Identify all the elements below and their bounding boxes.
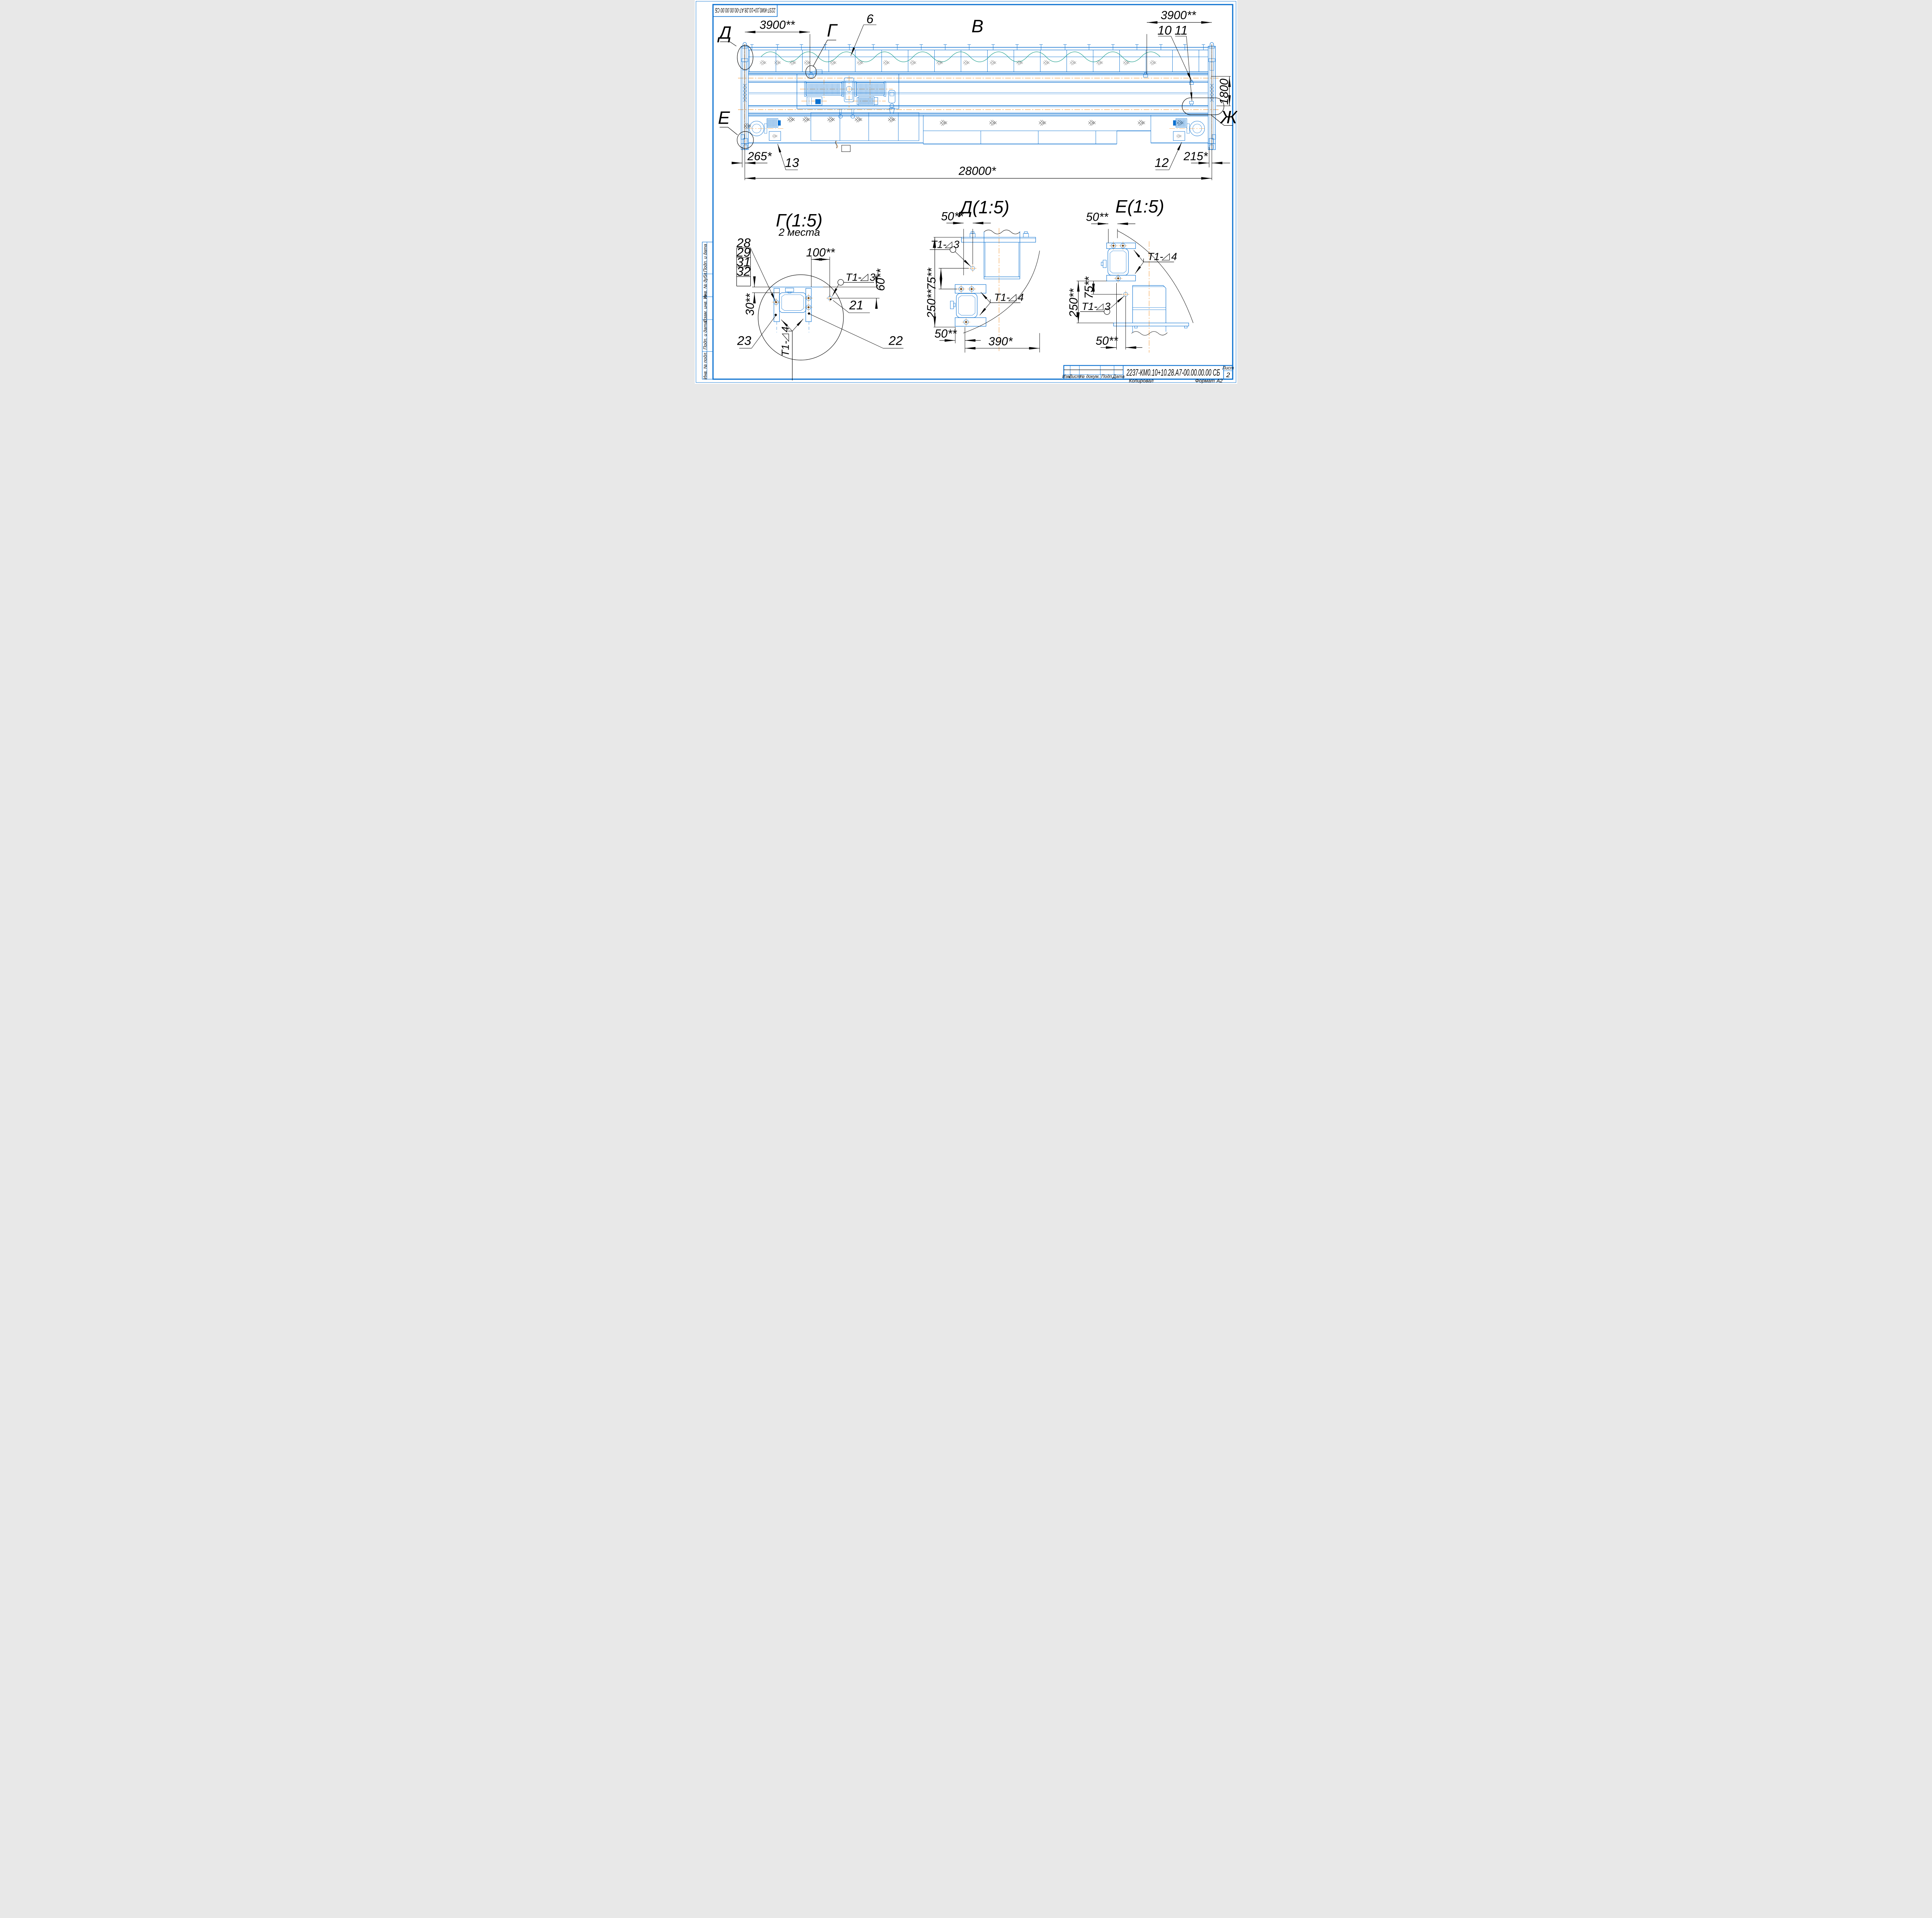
kopiroval-label: Копировал [1129,378,1154,384]
weld-grade: 3 [954,238,959,250]
pos-13: 13 [785,155,799,170]
weld-prefix: Т1- [931,238,947,250]
side-strip-label: Взам. инв. № [703,294,708,322]
dim-d-50-top: 50** [941,210,964,223]
side-strip-label: Подп. и дата [703,321,708,349]
dim-d-75: 75** [925,267,938,290]
dim-left-offset: 265* [747,150,772,163]
detail-g-note: 2 места [778,226,820,238]
dim-g-100: 100** [806,246,835,259]
side-strip-label: Инв. № подл. [703,352,708,380]
weld-prefix: Т1- [846,271,862,283]
detail-e-title: Е(1:5) [1116,196,1164,216]
dim-right-offset: 215* [1183,150,1208,163]
dim-d-250: 250** [925,289,938,319]
marker-e-label: Е [718,108,730,128]
pos-21: 21 [849,298,863,312]
format-label: Формат [1195,378,1215,384]
weld-grade: 3 [870,271,876,283]
dim-d-390: 390* [988,335,1013,348]
col-list: Лист [1069,374,1081,379]
dim-g-60: 60** [874,268,887,291]
pos-10: 10 [1158,23,1172,37]
pos-22: 22 [888,333,903,347]
col-podp: Подп. [1101,374,1113,379]
document-designation: 2237-КМ0.10+10.28.А7-00.00.00.00 СБ [1126,368,1220,378]
pos-23: 23 [737,333,751,347]
weld-grade: 3 [1105,300,1111,312]
side-strip-label: Подп. и дата [703,244,708,272]
stack-32: 32 [736,264,750,279]
dim-e-50-bot: 50** [1096,334,1119,347]
format-value: А2 [1216,378,1223,384]
weld-prefix: Т1- [994,291,1010,303]
dim-e-75: 75** [1082,276,1095,299]
dim-g-30: 30** [743,293,757,316]
sheet-label: Лист [1222,366,1234,371]
col-doc: № докум. [1080,374,1100,379]
weld-prefix: Т1- [779,341,791,357]
weld-grade: 4 [1018,291,1024,303]
dim-e-50-top: 50** [1086,210,1109,223]
marker-d-label: Д [717,22,731,43]
marker-g-label: Г [827,20,838,40]
weld-prefix: Т1- [1148,250,1163,262]
dim-gauge: 1800 [1218,78,1231,105]
view-label: В [971,16,983,36]
pos-11: 11 [1175,23,1188,37]
dim-e-250: 250** [1067,288,1080,318]
drawing-sheet: 2237-КМ0,10+10.28.А7-00.00.00.00 СБ Подп… [695,0,1237,384]
pos-12: 12 [1155,155,1168,170]
dim-d-50-bot: 50** [934,327,957,340]
weld-prefix: Т1- [1082,300,1097,312]
detail-d-title: Д(1:5) [958,197,1009,217]
dim-span-left: 3900** [760,18,795,31]
col-data: Дата [1112,374,1125,379]
dim-total: 28000* [958,165,997,178]
top-designation: 2237-КМ0,10+10.28.А7-00.00.00.00 СБ [715,7,776,14]
weld-grade: 4 [779,327,791,332]
pos-6: 6 [866,12,874,26]
dim-span-right: 3900** [1161,9,1196,22]
weld-grade: 4 [1171,250,1177,262]
sheet-number: 2 [1226,371,1230,379]
